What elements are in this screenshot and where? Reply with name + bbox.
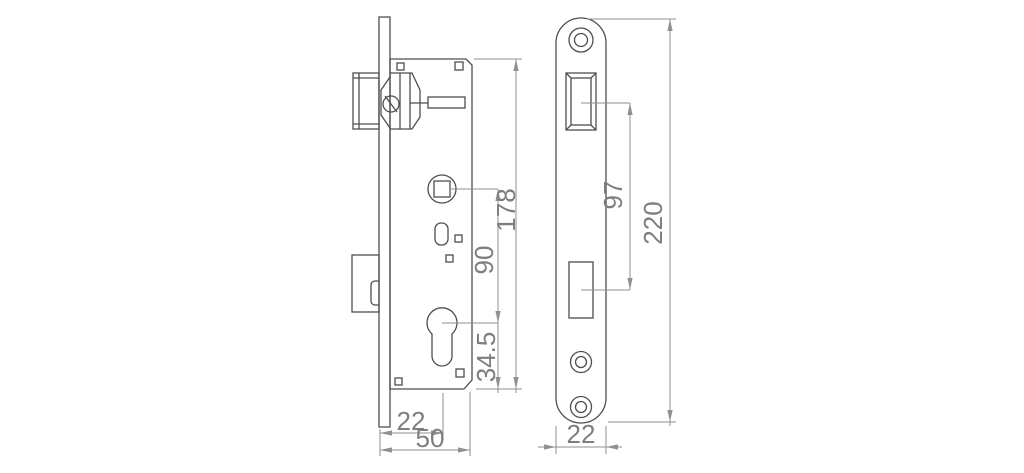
side-view-dimensions: 90 178 34.5 22 50 [380, 59, 522, 456]
arrowhead [380, 430, 392, 435]
arrowhead [495, 311, 500, 323]
screw-hole [571, 352, 592, 373]
screw-hole [571, 397, 592, 418]
screw-hole-inner [575, 34, 588, 47]
arrowhead [458, 447, 470, 452]
screw-hole-inner [576, 357, 587, 368]
dim-label-220: 220 [638, 201, 668, 244]
dim-label-97: 97 [598, 181, 628, 210]
lock-body-side-view [352, 17, 472, 427]
faceplate-front-view [556, 18, 606, 423]
dim-label-34-5: 34.5 [471, 332, 501, 383]
faceplate-outline [556, 18, 606, 423]
arrowhead [606, 444, 618, 449]
case-fixing-hole [456, 369, 464, 377]
arrowhead [667, 19, 672, 31]
arrowhead [544, 444, 556, 449]
latch-opening-bevel [591, 73, 596, 78]
mechanism-hole [446, 255, 453, 262]
case-fixing-hole [397, 63, 404, 70]
latch-opening [566, 73, 596, 130]
case-fixing-hole [455, 62, 463, 70]
dim-label-22-width: 22 [567, 419, 596, 449]
latch-spring-slot [428, 97, 465, 108]
deadbolt [352, 255, 379, 312]
arrowhead [627, 278, 632, 290]
arrowhead [667, 410, 672, 422]
dim-label-178: 178 [491, 188, 521, 231]
latch-opening-inner [571, 78, 591, 125]
latch-bevel [381, 77, 390, 128]
front-view-dimensions: 97 220 22 [538, 19, 676, 454]
case-fixing-hole [395, 378, 402, 385]
arrowhead [380, 447, 392, 452]
euro-cylinder-hole [427, 308, 457, 366]
mechanism-hole [455, 235, 462, 242]
deadbolt-detail [371, 281, 379, 305]
arrowhead [513, 59, 518, 71]
arrowhead [513, 377, 518, 389]
drawing-canvas: 90 178 34.5 22 50 [0, 0, 1024, 473]
screw-hole [569, 28, 593, 52]
dim-label-90: 90 [469, 246, 499, 275]
latch-opening-bevel [591, 125, 596, 130]
screw-hole-inner [576, 402, 587, 413]
arrowhead [627, 103, 632, 115]
lock-technical-drawing: 90 178 34.5 22 50 [0, 0, 1024, 473]
latch-bolt-tail [390, 73, 420, 129]
latch-bolt-head [353, 73, 379, 129]
mechanism-slot [435, 223, 448, 245]
dim-label-50: 50 [416, 423, 445, 453]
spindle-square-hole [434, 181, 450, 197]
latch-opening-bevel [566, 73, 571, 78]
deadbolt-head [352, 255, 379, 312]
latch-opening-bevel [566, 125, 571, 130]
latch-screw-slot [385, 96, 397, 112]
